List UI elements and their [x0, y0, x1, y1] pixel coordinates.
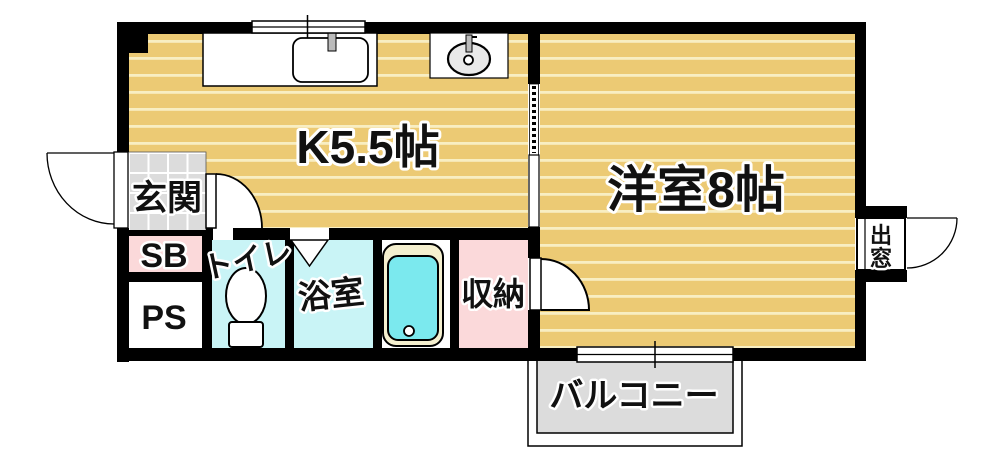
pipe-space-label: PS	[141, 299, 186, 337]
wall-bath-tub	[373, 240, 382, 348]
western-room-label: 洋室8帖	[607, 162, 785, 218]
entrance-door-leaf	[114, 152, 128, 228]
storage-label: 収納	[461, 276, 525, 312]
wall-entrance-sb	[128, 230, 206, 236]
wall-left-lower	[117, 228, 129, 362]
washbasin-faucet-icon	[466, 35, 472, 52]
divider-mid	[528, 227, 540, 258]
closet-door-leaf	[530, 258, 541, 310]
wall-right-of-sbps	[202, 230, 212, 348]
bay-window-stub-top	[855, 206, 907, 218]
bay-window-stub-bottom	[855, 270, 907, 282]
bathroom-door-opening	[290, 228, 329, 240]
entrance-kitchen-door-leaf	[206, 174, 216, 228]
bay-window-label-char-2: 窓	[870, 246, 892, 271]
divider-low	[528, 310, 540, 348]
shoe-box-label: SB	[140, 237, 187, 275]
toilet-door-opening	[213, 228, 233, 240]
wall-right-upper	[855, 22, 866, 206]
washbasin-drain	[464, 56, 473, 65]
wall-tub-storage	[450, 228, 459, 348]
sliding-door-panel	[529, 155, 539, 227]
wall-left-upper	[117, 22, 129, 152]
toilet-base-icon	[229, 322, 263, 347]
wall-service-top	[206, 228, 540, 240]
balcony-label: バルコニー	[549, 377, 718, 415]
floor-plan: K5.5帖 洋室8帖 玄関 SB PS トイレ 浴室 収納 バルコニー 出 窓	[0, 0, 1004, 458]
wall-top	[117, 22, 866, 34]
kitchen-label: K5.5帖	[296, 121, 439, 173]
wall-bottom	[117, 348, 866, 361]
bathtub-fixture	[383, 244, 443, 346]
bay-window-label-char-1: 出	[870, 223, 892, 248]
bathroom-label: 浴室	[296, 273, 366, 317]
divider-top	[528, 22, 540, 84]
bathtub-drain	[404, 326, 414, 336]
entrance-label: 玄関	[132, 179, 202, 218]
